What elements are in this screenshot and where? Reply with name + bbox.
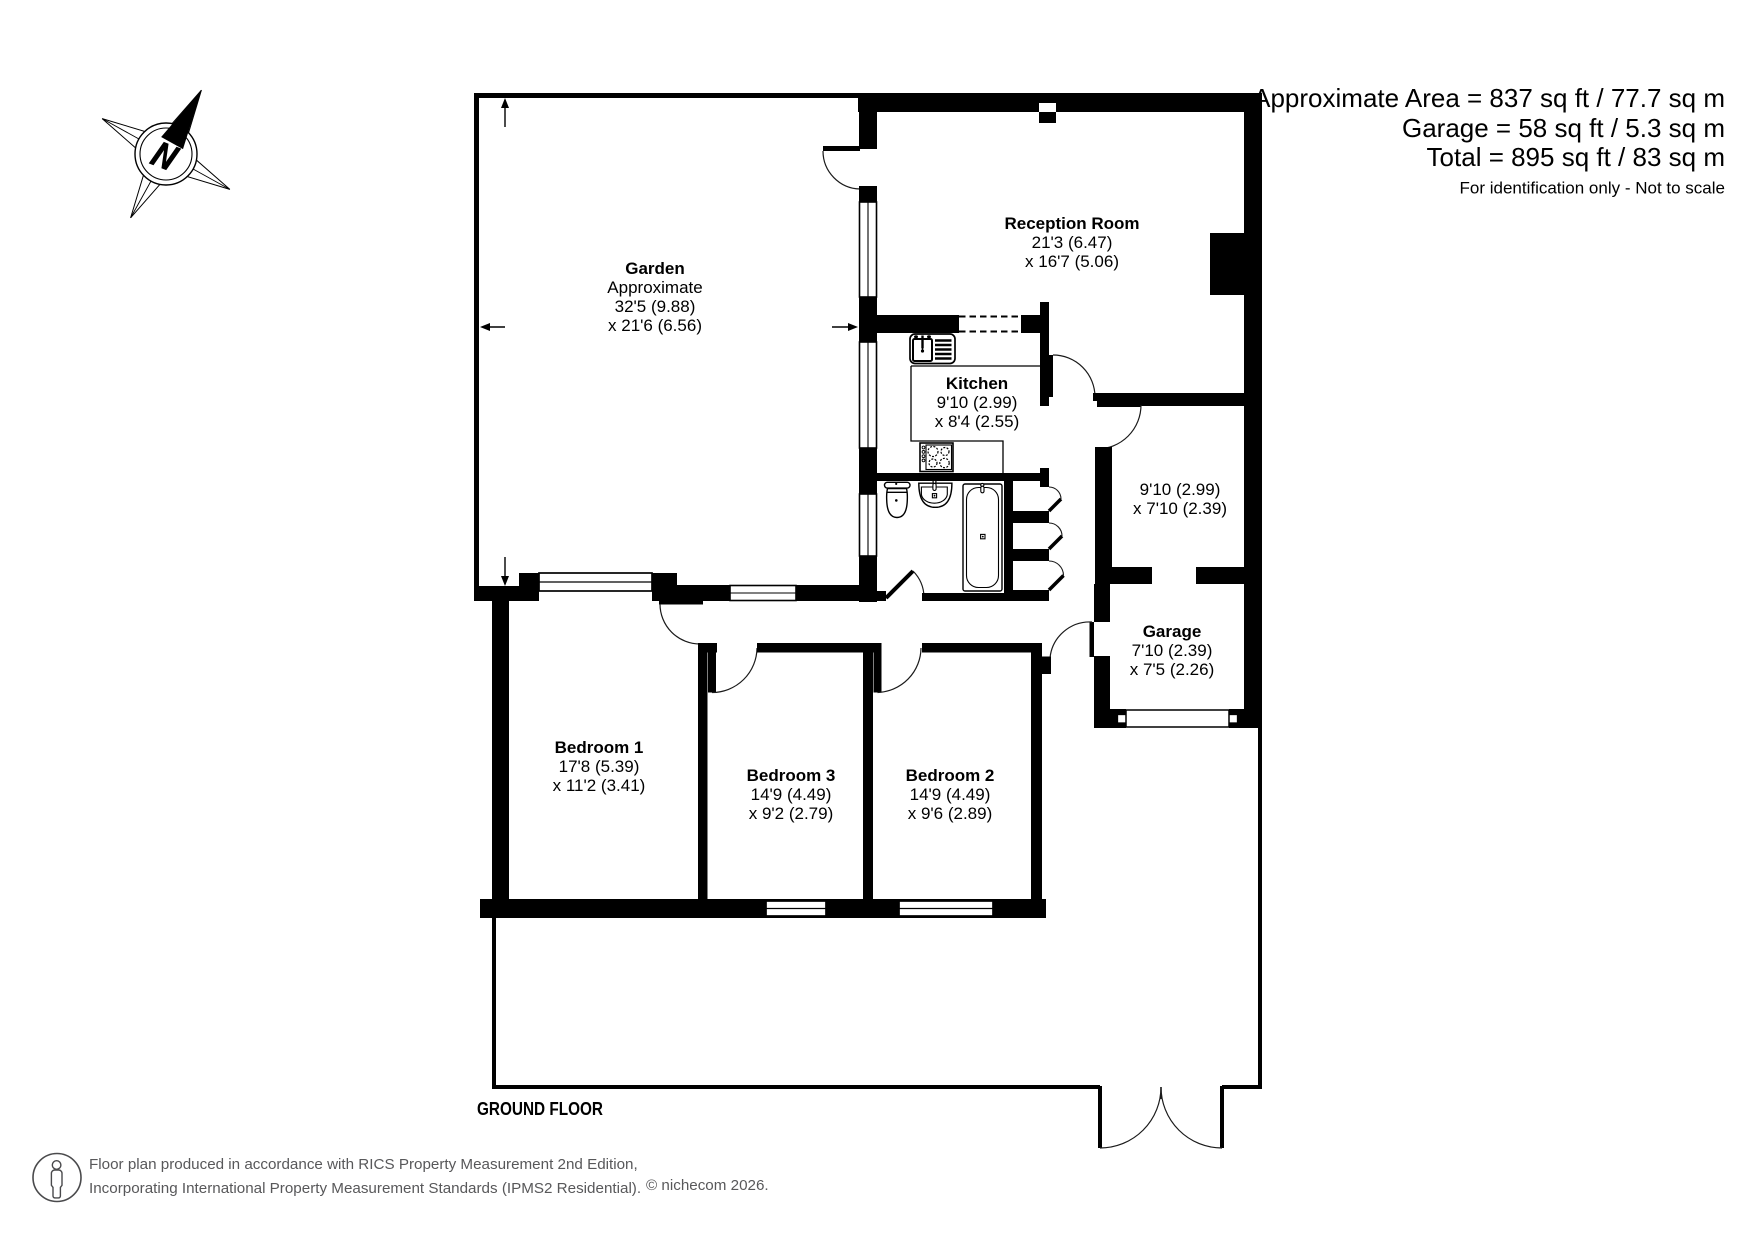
svg-text:Garden: Garden bbox=[625, 259, 685, 278]
svg-text:Total = 895 sq ft / 83 sq m: Total = 895 sq ft / 83 sq m bbox=[1427, 142, 1725, 172]
svg-text:For identification only - Not: For identification only - Not to scale bbox=[1459, 179, 1725, 198]
svg-text:© nichecom 2026.: © nichecom 2026. bbox=[646, 1177, 769, 1194]
svg-text:Reception Room: Reception Room bbox=[1004, 214, 1139, 233]
svg-text:Approximate Area = 837 sq ft /: Approximate Area = 837 sq ft / 77.7 sq m bbox=[1253, 83, 1725, 113]
svg-text:Approximate: Approximate bbox=[607, 278, 702, 297]
svg-text:Bedroom 3: Bedroom 3 bbox=[747, 766, 836, 785]
svg-text:9'10 (2.99): 9'10 (2.99) bbox=[1140, 480, 1221, 499]
svg-text:7'10 (2.39): 7'10 (2.39) bbox=[1132, 641, 1213, 660]
svg-text:14'9 (4.49): 14'9 (4.49) bbox=[751, 785, 832, 804]
svg-text:x 8'4 (2.55): x 8'4 (2.55) bbox=[935, 412, 1020, 431]
svg-text:x 7'10 (2.39): x 7'10 (2.39) bbox=[1133, 499, 1227, 518]
svg-text:Kitchen: Kitchen bbox=[946, 374, 1008, 393]
svg-text:Garage = 58 sq ft / 5.3 sq m: Garage = 58 sq ft / 5.3 sq m bbox=[1402, 113, 1725, 143]
svg-text:21'3 (6.47): 21'3 (6.47) bbox=[1032, 233, 1113, 252]
svg-text:32'5 (9.88): 32'5 (9.88) bbox=[615, 297, 696, 316]
svg-text:14'9 (4.49): 14'9 (4.49) bbox=[910, 785, 991, 804]
svg-text:x 21'6 (6.56): x 21'6 (6.56) bbox=[608, 316, 702, 335]
svg-text:x 16'7 (5.06): x 16'7 (5.06) bbox=[1025, 252, 1119, 271]
svg-text:Bedroom 1: Bedroom 1 bbox=[555, 738, 644, 757]
svg-text:Floor plan produced in accorda: Floor plan produced in accordance with R… bbox=[89, 1156, 638, 1173]
svg-text:17'8 (5.39): 17'8 (5.39) bbox=[559, 757, 640, 776]
svg-text:GROUND FLOOR: GROUND FLOOR bbox=[477, 1098, 603, 1119]
svg-text:9'10 (2.99): 9'10 (2.99) bbox=[937, 393, 1018, 412]
svg-text:x 7'5 (2.26): x 7'5 (2.26) bbox=[1130, 660, 1215, 679]
svg-text:x 9'6 (2.89): x 9'6 (2.89) bbox=[908, 804, 993, 823]
svg-text:Incorporating International Pr: Incorporating International Property Mea… bbox=[89, 1180, 641, 1197]
svg-text:x 11'2 (3.41): x 11'2 (3.41) bbox=[553, 776, 646, 795]
svg-text:Bedroom 2: Bedroom 2 bbox=[906, 766, 995, 785]
svg-text:Garage: Garage bbox=[1143, 622, 1202, 641]
svg-text:x 9'2 (2.79): x 9'2 (2.79) bbox=[749, 804, 834, 823]
